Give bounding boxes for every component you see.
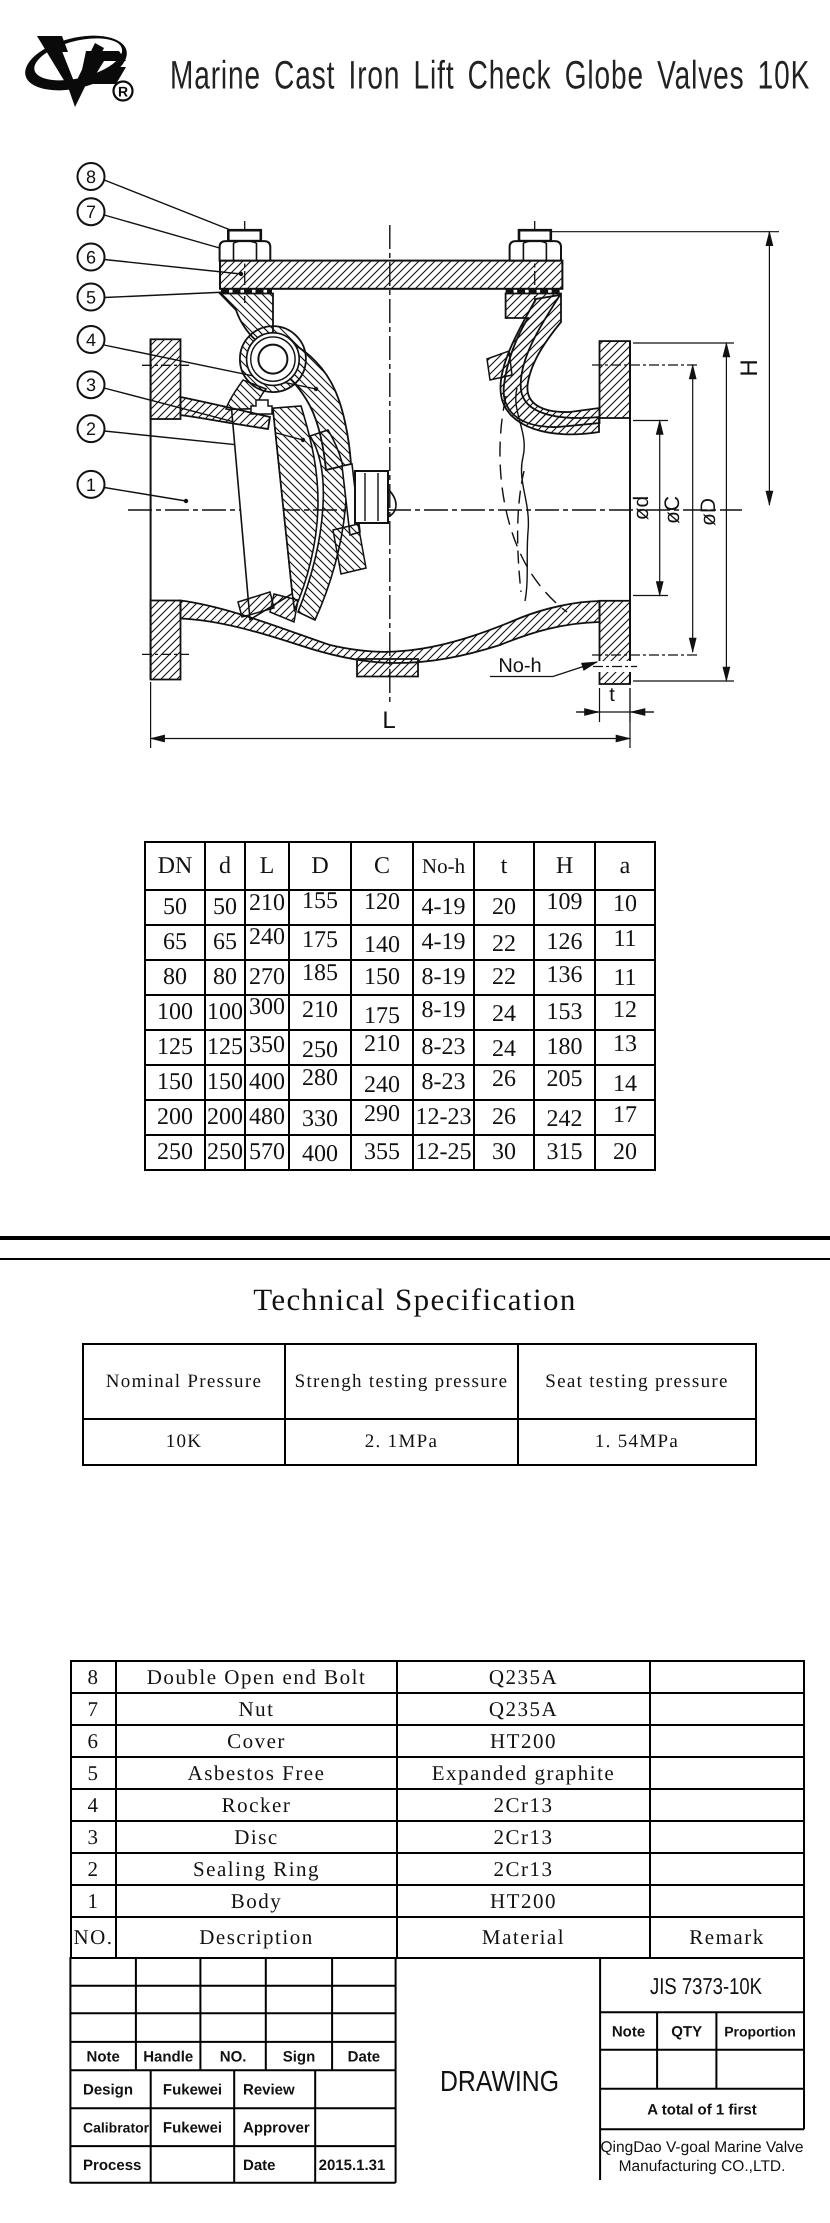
svg-text:Review: Review [243,2082,295,2099]
svg-text:øC: øC [661,496,684,524]
svg-text:H: H [736,359,763,376]
svg-text:DRAWING: DRAWING [440,2066,559,2098]
svg-text:Fukewei: Fukewei [163,2082,222,2099]
svg-text:QingDao V-goal Marine Valve: QingDao V-goal Marine Valve [600,2139,803,2156]
svg-text:Calibrator: Calibrator [83,2120,150,2136]
svg-text:NO.: NO. [220,2049,247,2066]
svg-text:A total of 1 first: A total of 1 first [647,2102,756,2119]
svg-text:Manufacturing CO.,LTD.: Manufacturing CO.,LTD. [619,2158,786,2175]
svg-text:3: 3 [86,375,96,395]
svg-text:2: 2 [86,419,96,439]
svg-text:t: t [609,684,615,706]
svg-text:Fukewei: Fukewei [163,2120,222,2137]
svg-text:Sign: Sign [283,2049,316,2066]
svg-text:ød: ød [630,496,653,521]
svg-text:L: L [382,707,395,734]
svg-text:øD: øD [697,498,720,526]
svg-text:No-h: No-h [498,655,541,677]
svg-text:Date: Date [243,2157,276,2174]
svg-text:QTY: QTY [671,2024,702,2041]
svg-text:Process: Process [83,2157,141,2174]
svg-text:Proportion: Proportion [724,2024,796,2040]
svg-text:Note: Note [87,2049,120,2066]
svg-text:7: 7 [86,202,96,222]
svg-text:Handle: Handle [143,2049,193,2066]
svg-text:Approver: Approver [243,2120,310,2137]
svg-text:4: 4 [86,330,96,350]
svg-text:8: 8 [86,167,96,187]
svg-text:Note: Note [612,2024,645,2041]
svg-text:1: 1 [86,475,96,495]
svg-text:6: 6 [86,248,96,268]
svg-text:Design: Design [83,2082,133,2099]
svg-text:JIS 7373-10K: JIS 7373-10K [650,1973,763,1999]
svg-text:2015.1.31: 2015.1.31 [319,2157,386,2174]
svg-text:5: 5 [86,288,96,308]
svg-text:Date: Date [348,2049,381,2066]
